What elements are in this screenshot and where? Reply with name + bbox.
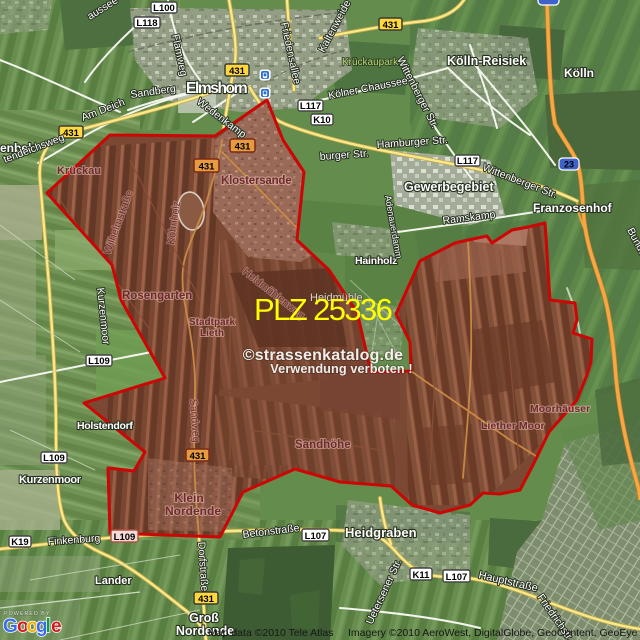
svg-text:431: 431 (63, 128, 80, 139)
svg-text:L107: L107 (446, 572, 468, 583)
svg-text:Verwendung verboten !: Verwendung verboten ! (270, 362, 412, 376)
svg-text:Elmshorn: Elmshorn (186, 80, 247, 97)
svg-text:K19: K19 (11, 537, 28, 548)
svg-text:Krückaupark: Krückaupark (342, 57, 399, 68)
svg-text:23: 23 (564, 160, 574, 170)
svg-text:431: 431 (199, 162, 216, 173)
svg-text:Heidgraben: Heidgraben (345, 525, 417, 540)
svg-text:Map data ©2010 Tele Atlas: Map data ©2010 Tele Atlas (208, 627, 333, 639)
svg-text:431: 431 (383, 20, 400, 31)
svg-text:L117: L117 (300, 101, 321, 112)
svg-text:Klostersande: Klostersande (221, 175, 291, 187)
svg-text:L118: L118 (136, 18, 157, 29)
svg-text:Krückau: Krückau (57, 165, 101, 177)
svg-text:431: 431 (190, 451, 207, 462)
svg-text:L107: L107 (305, 531, 327, 542)
svg-text:G: G (3, 616, 18, 637)
svg-text:Moorhäuser: Moorhäuser (530, 403, 590, 415)
svg-text:L109: L109 (88, 356, 110, 367)
svg-text:L109: L109 (114, 532, 136, 543)
svg-text:Gewerbegebiet: Gewerbegebiet (404, 180, 494, 194)
svg-text:Lander: Lander (95, 575, 132, 587)
svg-text:e: e (51, 616, 62, 637)
svg-text:Imagery ©2010 AeroWest, Digita: Imagery ©2010 AeroWest, DigitalGlobe, Ge… (348, 627, 638, 639)
svg-text:Kurzenmoor: Kurzenmoor (19, 474, 82, 486)
svg-text:Nordende: Nordende (165, 504, 221, 518)
svg-text:L117: L117 (457, 156, 478, 167)
svg-text:Holstendorf: Holstendorf (77, 420, 133, 432)
svg-text:L109: L109 (43, 453, 65, 464)
svg-text:L100: L100 (153, 3, 175, 14)
svg-text:Rosengarten: Rosengarten (122, 290, 192, 302)
svg-text:431: 431 (229, 66, 246, 77)
svg-text:Klein: Klein (174, 491, 203, 505)
svg-text:Groß: Groß (189, 611, 219, 625)
svg-text:l: l (46, 616, 51, 637)
svg-text:Hainholz: Hainholz (355, 255, 397, 267)
svg-text:Franzosenhof: Franzosenhof (533, 201, 613, 215)
svg-text:Kölln: Kölln (564, 66, 594, 80)
svg-text:K11: K11 (413, 570, 431, 581)
svg-text:Lieth: Lieth (200, 328, 224, 339)
svg-text:431: 431 (235, 142, 252, 153)
svg-text:PLZ 25336: PLZ 25336 (254, 292, 392, 327)
svg-text:Sandhöhe: Sandhöhe (295, 439, 351, 451)
svg-text:Stadtpark: Stadtpark (189, 317, 236, 328)
svg-text:Liether Moor: Liether Moor (481, 420, 545, 432)
svg-text:Kölln-Reisiek: Kölln-Reisiek (447, 54, 526, 68)
svg-text:431: 431 (198, 594, 215, 605)
svg-text:K10: K10 (313, 115, 330, 126)
